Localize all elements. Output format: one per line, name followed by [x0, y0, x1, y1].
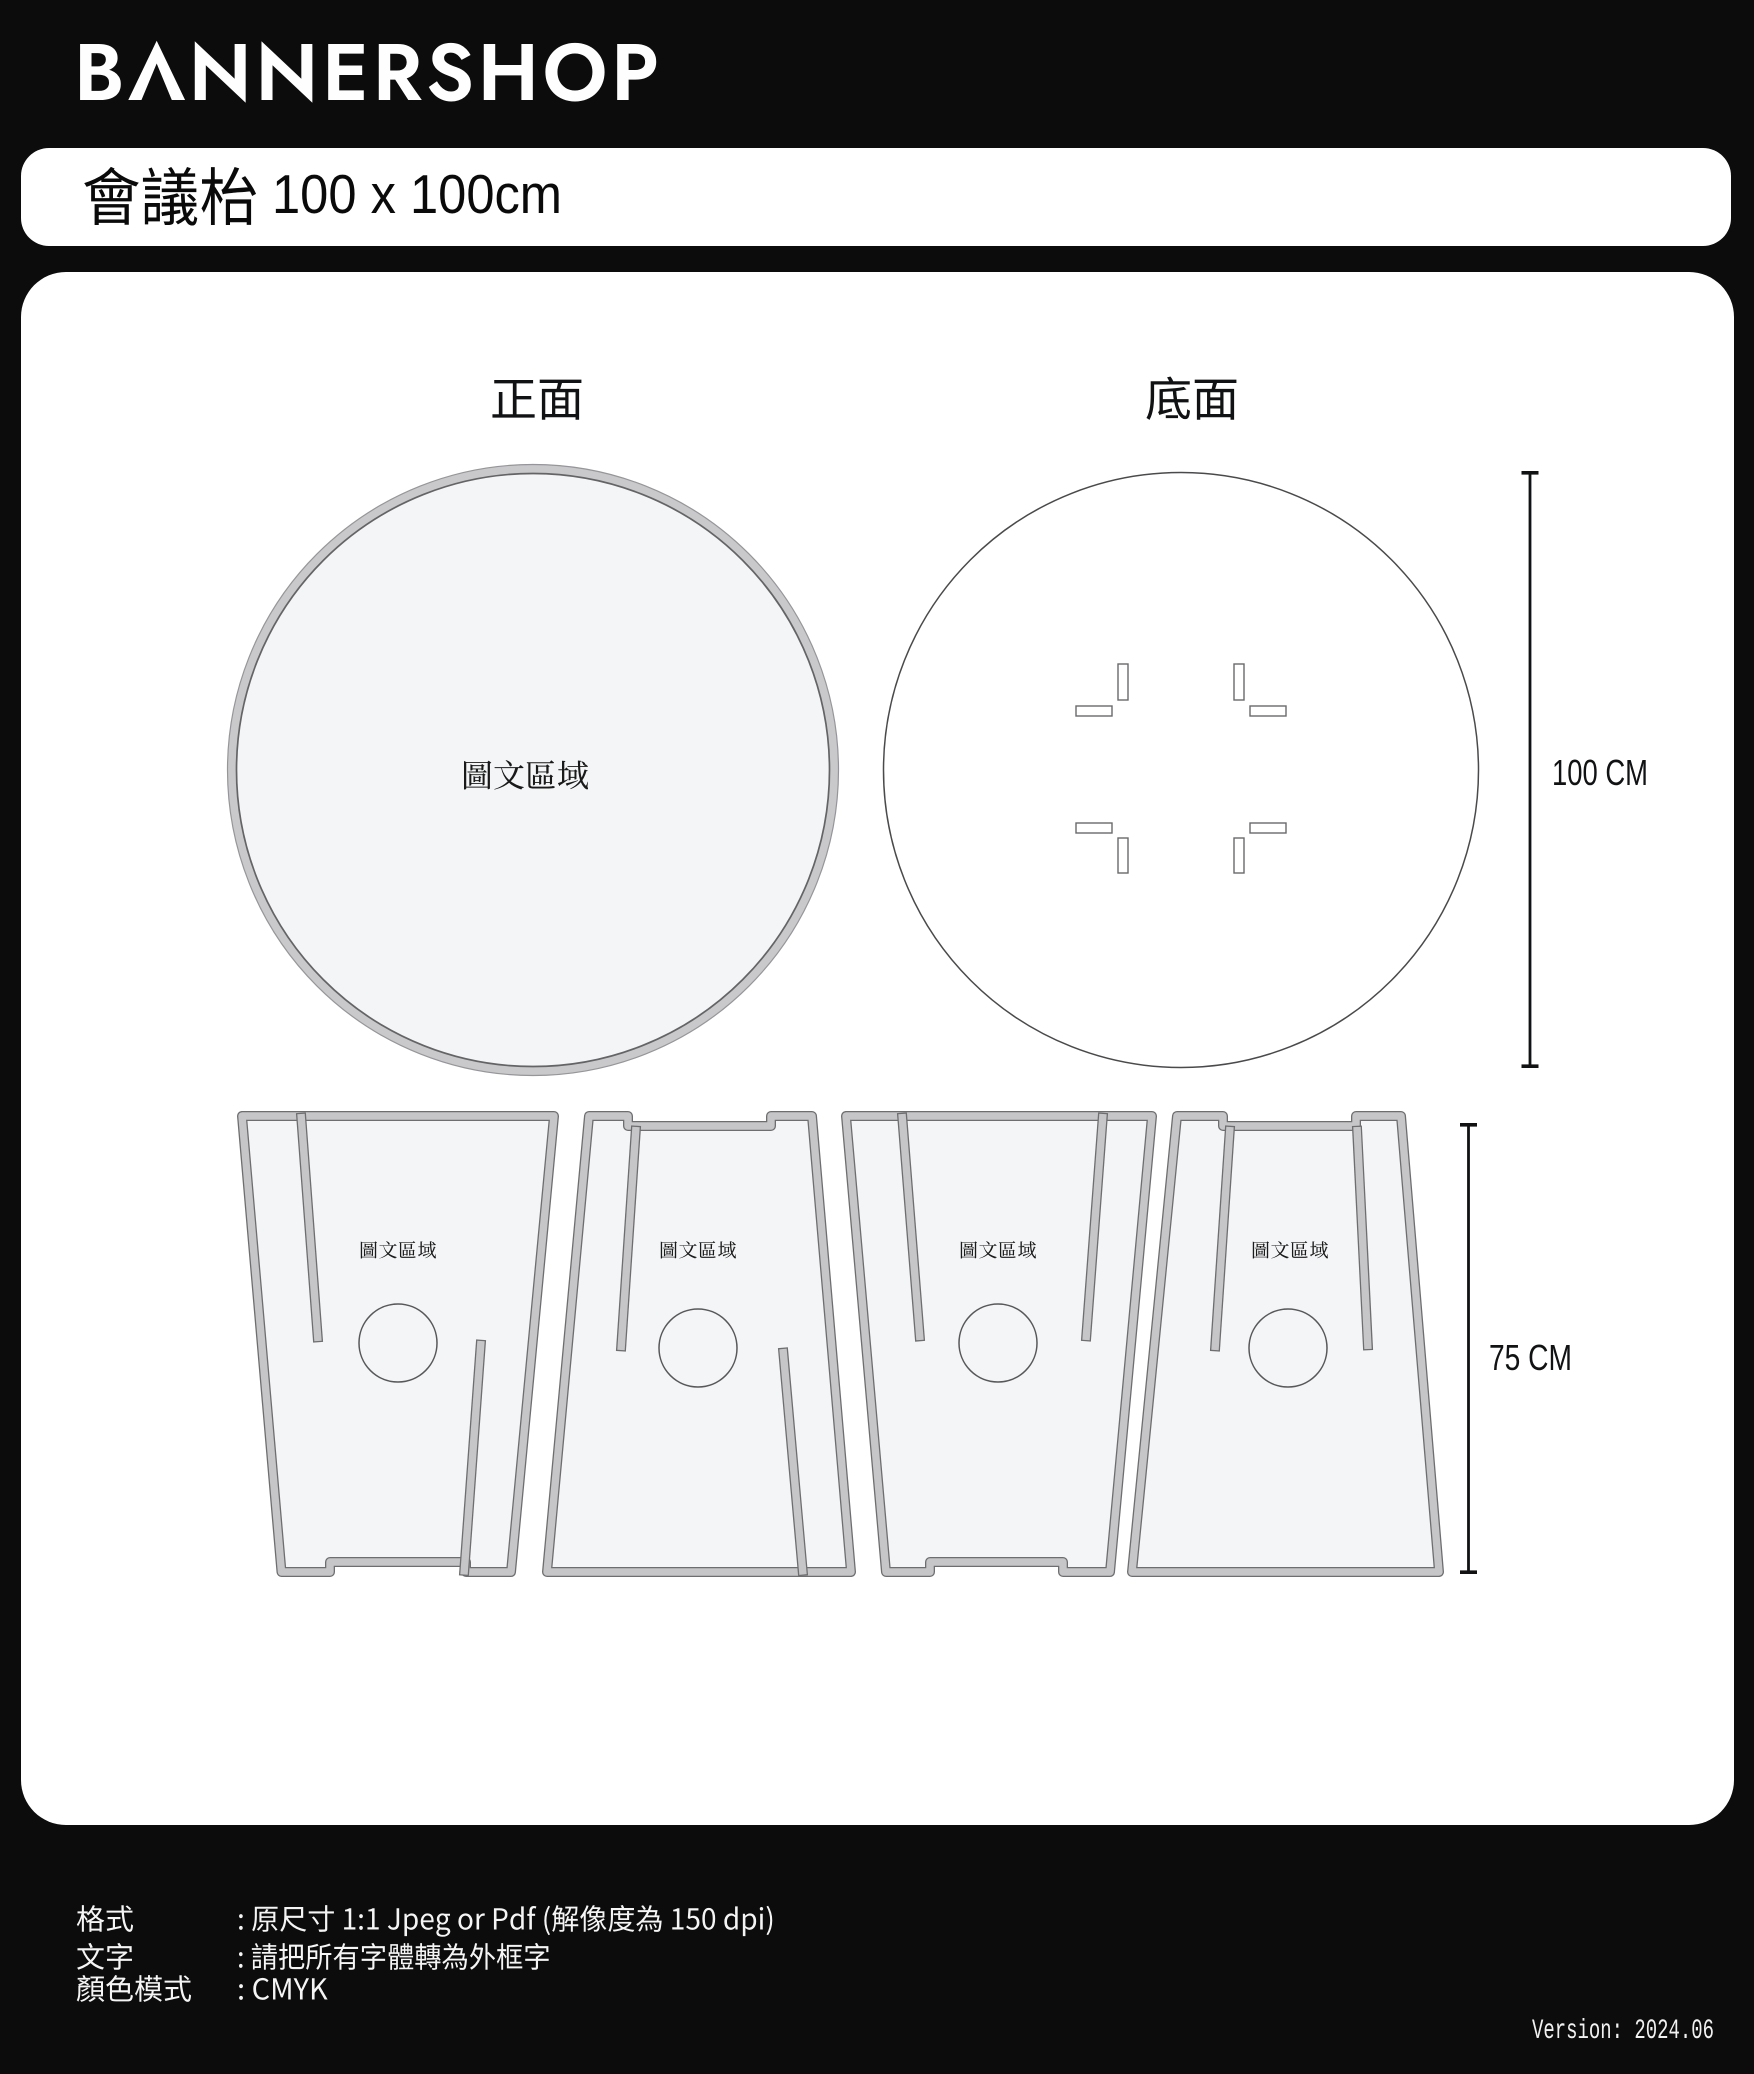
svg-text:75 CM: 75 CM — [1489, 1337, 1572, 1378]
svg-text:100 x 100cm: 100 x 100cm — [272, 164, 562, 225]
svg-text:100 CM: 100 CM — [1552, 752, 1648, 793]
svg-text:Version: 2024.06: Version: 2024.06 — [1532, 2016, 1714, 2047]
